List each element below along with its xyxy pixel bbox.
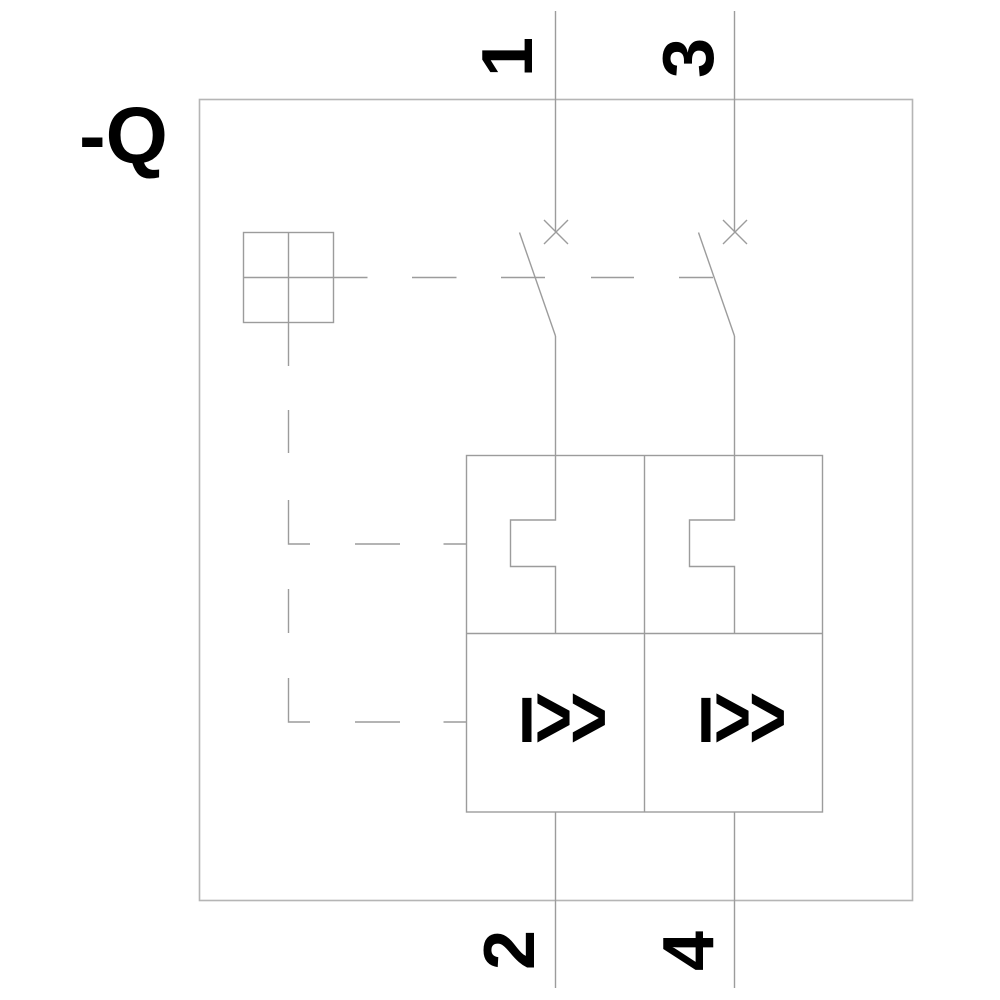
terminal-label-2: 2 xyxy=(474,930,546,970)
pole2-conductor-thermal-element xyxy=(690,336,735,634)
trip-chevrons-glyph: >> xyxy=(535,671,606,762)
terminal-label-1: 1 xyxy=(472,37,544,77)
trip-chevrons-glyph: >> xyxy=(714,671,785,762)
terminal-label-3: 3 xyxy=(653,38,725,78)
trip-bar-glyph: I xyxy=(697,684,713,756)
device-designator: -Q xyxy=(79,96,168,176)
pole2-instantaneous-trip-label: I>> xyxy=(697,688,785,752)
pole1-switch-blade xyxy=(520,233,556,337)
pole2-switch-blade xyxy=(699,233,735,337)
pole1-instantaneous-trip-label: I>> xyxy=(518,688,606,752)
linkage-dashed-vertical xyxy=(289,410,311,722)
actuator-cross-icon xyxy=(244,233,368,367)
trip-bar-glyph: I xyxy=(518,684,534,756)
schematic-canvas: -Q 1 3 2 4 I>> I>> xyxy=(0,0,1000,1000)
terminal-label-4: 4 xyxy=(653,931,725,971)
pole1-conductor-thermal-element xyxy=(511,336,556,634)
